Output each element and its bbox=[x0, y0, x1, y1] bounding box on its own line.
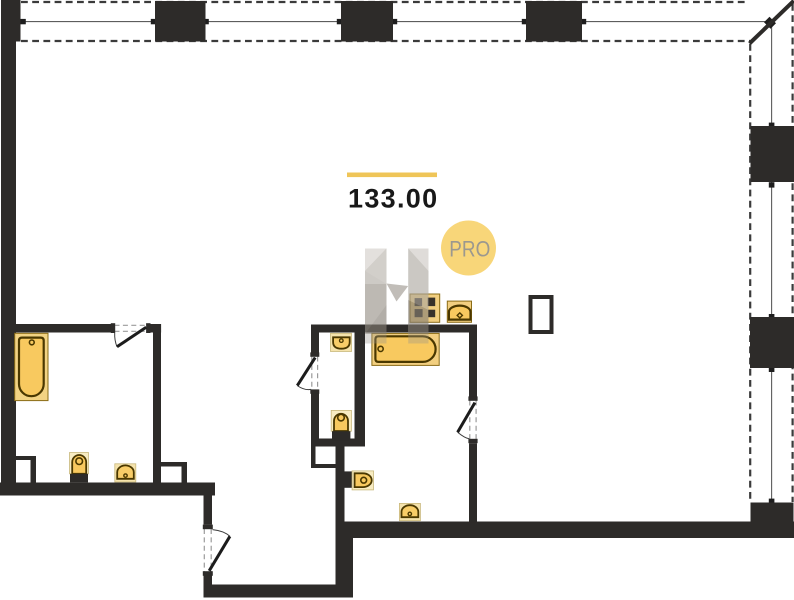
svg-text:133.00: 133.00 bbox=[348, 184, 438, 214]
svg-text:PRO: PRO bbox=[449, 236, 490, 261]
